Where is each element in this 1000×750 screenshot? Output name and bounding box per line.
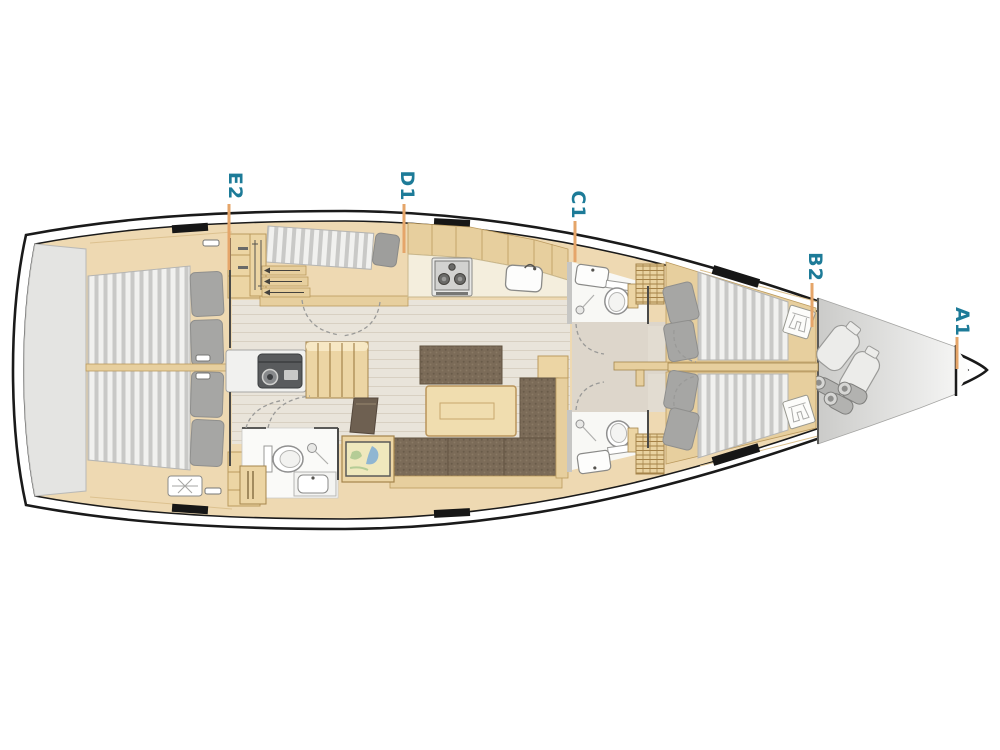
folding-seat-icon xyxy=(168,476,202,496)
steps-icon xyxy=(262,266,310,297)
companionway-stairs xyxy=(306,342,368,398)
cabin-label-c1[interactable]: C1 xyxy=(567,188,589,222)
chart-map-icon xyxy=(346,442,390,476)
aft-head xyxy=(240,428,338,504)
sail-locker xyxy=(809,298,968,444)
swim-platform xyxy=(24,244,86,496)
galley-sink-icon xyxy=(505,263,543,292)
cabin-label-e2[interactable]: E2 xyxy=(224,169,246,203)
cabin-label-a1[interactable]: A1 xyxy=(951,305,973,339)
stove-icon xyxy=(432,258,472,296)
bathroom-sink-icon xyxy=(577,450,611,474)
cabinet-icon xyxy=(240,466,266,504)
floor-plan-drawing xyxy=(0,0,1000,750)
bathroom-sink-icon xyxy=(294,472,336,496)
engine-compartment xyxy=(226,350,306,392)
yacht-floor-plan: E2 D1 C1 B2 A1 xyxy=(0,0,1000,750)
cabin-label-b2[interactable]: B2 xyxy=(804,250,826,284)
toilet-icon xyxy=(264,446,303,472)
bathroom-sink-icon xyxy=(575,264,609,288)
nav-station xyxy=(342,436,394,482)
cabin-label-d1[interactable]: D1 xyxy=(396,169,418,203)
